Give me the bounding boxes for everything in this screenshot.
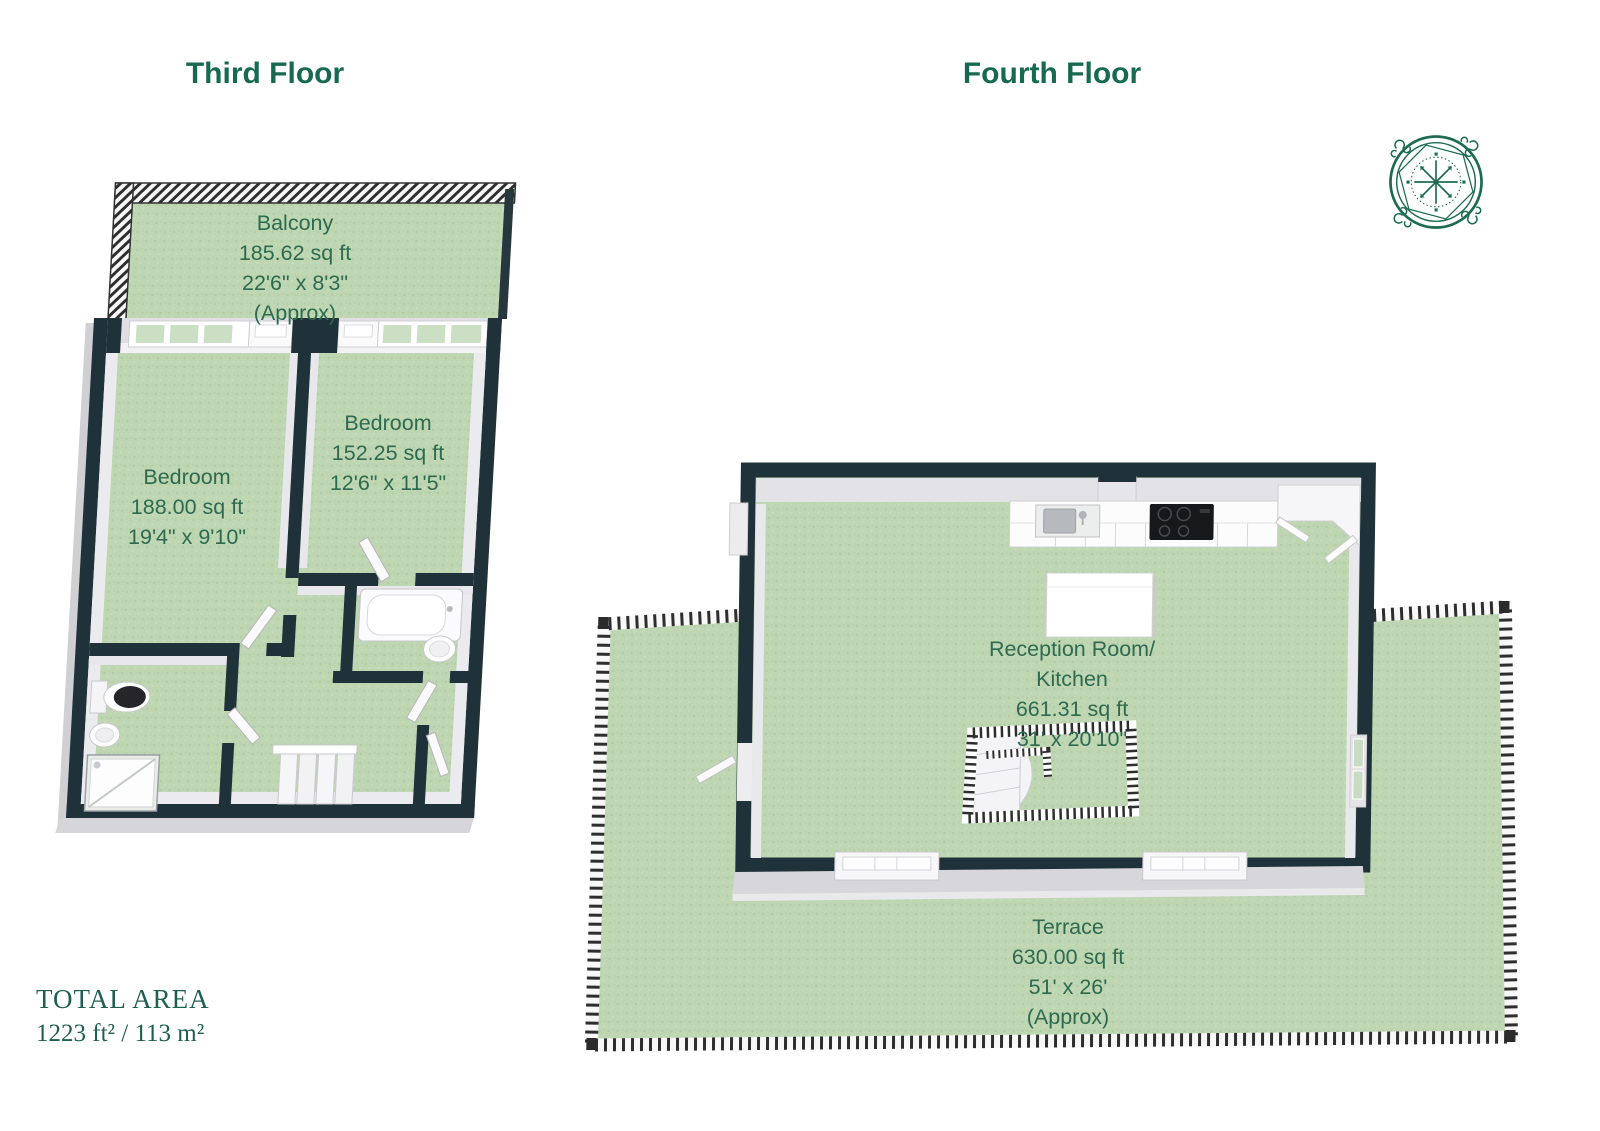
balcony-railing-top — [114, 183, 515, 203]
room-dims: 22'6" x 8'3" — [239, 268, 351, 298]
bathtub — [358, 589, 463, 641]
fourth-floor-title: Fourth Floor — [963, 57, 1141, 91]
wall-outer-face-bottom — [55, 818, 474, 833]
third-floor-title: Third Floor — [186, 57, 344, 91]
room-area: 188.00 sq ft — [128, 492, 246, 522]
glass-pane — [382, 324, 413, 344]
room-name: Bedroom — [128, 462, 246, 492]
reception-kitchen-label: Reception Room/ Kitchen 661.31 sq ft 31'… — [989, 634, 1155, 754]
total-area: TOTAL AREA 1223 ft² / 113 m² — [36, 984, 210, 1048]
wall-inner-face — [89, 656, 230, 665]
bedroom-left-label: Bedroom 188.00 sq ft 19'4" x 9'10" — [128, 462, 246, 552]
wall-bedroom1-bottom — [266, 643, 284, 656]
wall-pillar — [106, 318, 122, 353]
wall-bedroom2-bottom — [298, 573, 379, 586]
room-dims: 19'4" x 9'10" — [128, 522, 246, 552]
glass-pane — [135, 324, 166, 344]
room-name: Bedroom — [330, 408, 446, 438]
room-name: Terrace — [1012, 912, 1124, 942]
room-area: 630.00 sq ft — [1012, 942, 1124, 972]
room-area: 661.31 sq ft — [989, 694, 1155, 724]
room-area: 152.25 sq ft — [330, 438, 446, 468]
window-bay — [1143, 852, 1247, 880]
room-approx: (Approx) — [239, 298, 351, 328]
wall-bathroom-bottom — [333, 671, 424, 683]
room-name: Balcony — [239, 208, 351, 238]
glass-pane — [450, 324, 483, 344]
wall-bedroom2-bottom — [415, 573, 474, 586]
balcony-label: Balcony 185.62 sq ft 22'6" x 8'3" (Appro… — [239, 208, 351, 328]
room-approx: (Approx) — [1012, 1002, 1124, 1032]
total-area-value: 1223 ft² / 113 m² — [36, 1020, 210, 1048]
total-area-label: TOTAL AREA — [36, 984, 210, 1015]
bedroom-right-label: Bedroom 152.25 sq ft 12'6" x 11'5" — [330, 408, 446, 498]
kitchen-island — [1046, 573, 1158, 637]
compass-rose-icon — [1376, 122, 1496, 242]
glass-pane — [203, 324, 234, 344]
room-area: 185.62 sq ft — [239, 238, 351, 268]
wall-bathroom-bottom — [450, 671, 476, 683]
wall-inner-face-top — [756, 478, 1361, 502]
kitchen-sink — [1035, 505, 1099, 537]
wall-pier-cap — [1098, 470, 1136, 482]
wc-sink — [89, 723, 120, 747]
glazed-door-right — [1350, 735, 1367, 807]
room-name: Reception Room/ — [989, 634, 1155, 664]
room-dims: 31' x 20'10" — [989, 724, 1155, 754]
window-bay — [835, 852, 939, 880]
room-dims: 51' x 26' — [1012, 972, 1124, 1002]
exterior-box — [729, 503, 748, 555]
toilet — [90, 681, 151, 713]
glass-pane — [169, 324, 200, 344]
floorplan-page: Third Floor Fourth Floor — [0, 0, 1600, 1131]
glass-pane — [416, 324, 447, 344]
room-name-2: Kitchen — [989, 664, 1155, 694]
cooktop-hob — [1149, 504, 1214, 540]
terrace-label: Terrace 630.00 sq ft 51' x 26' (Approx) — [1012, 912, 1124, 1032]
wall-bedroom1-bottom — [89, 643, 240, 656]
room-dims: 12'6" x 11'5" — [330, 468, 446, 498]
shower — [84, 755, 159, 811]
staircase — [270, 745, 357, 804]
